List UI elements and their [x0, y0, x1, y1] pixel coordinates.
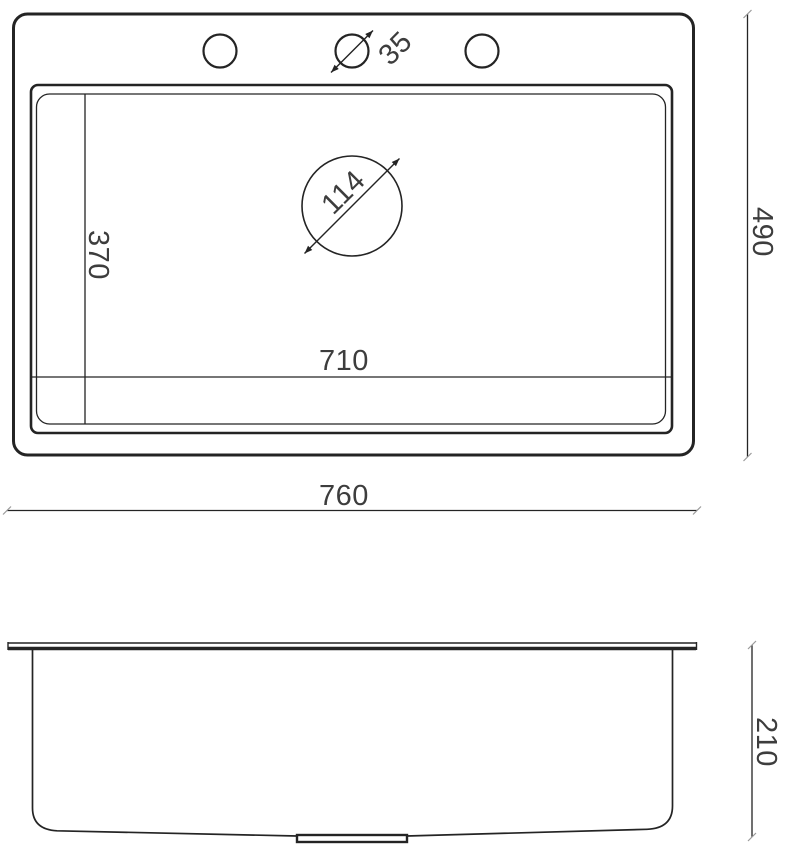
sink-technical-drawing: 370 710 490 760 35 114 210 — [0, 0, 786, 857]
bowl-depth-label: 370 — [82, 230, 114, 280]
faucet-hole-diameter-label: 35 — [373, 26, 419, 72]
faucet-hole-right — [466, 35, 499, 68]
sink-rim-outline — [31, 85, 672, 433]
height-label: 210 — [750, 717, 782, 767]
faucet-hole-diameter-line — [331, 31, 373, 73]
bowl-width-label: 710 — [319, 345, 369, 377]
overall-width-label: 760 — [319, 480, 369, 512]
sink-side-view: 210 — [0, 530, 786, 857]
drain-boss — [297, 835, 407, 842]
overall-depth-label: 490 — [746, 207, 778, 257]
sink-top-view: 370 710 490 760 35 114 — [0, 0, 786, 530]
faucet-hole-left — [204, 35, 237, 68]
bowl-profile — [33, 650, 673, 836]
countertop-outline — [14, 14, 694, 455]
drain-diameter-label: 114 — [315, 164, 371, 220]
